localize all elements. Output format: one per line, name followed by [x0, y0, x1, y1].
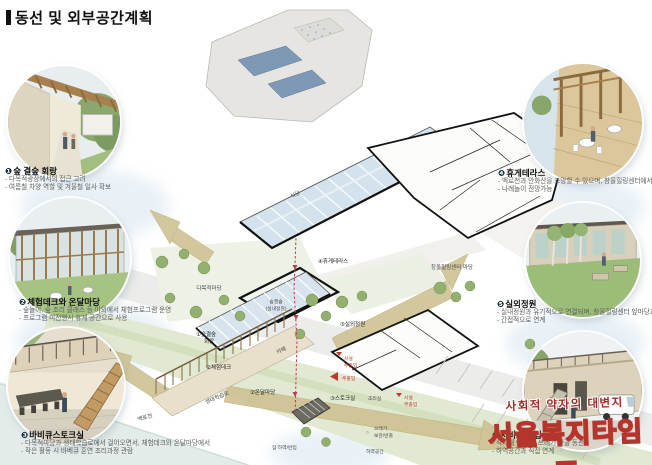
marker-deck: ②체험데크 — [206, 363, 231, 371]
caption-bbq-talk-room: ❸바비큐스토크실 - 다목적마당과 생태학습로에서 걸어오면서, 체험데크와 온… — [21, 430, 210, 456]
label-loading-area: 하역공간 — [366, 448, 384, 455]
caption-title: 숲 결숲 회랑 — [13, 166, 57, 176]
caption-title: 체험데크와 온달마당 — [27, 297, 100, 307]
page-title-text: 동선 및 외부공간계획 — [15, 7, 153, 28]
label-kitchen: 조리실 — [368, 395, 381, 402]
watermark: 사회적 약자의 대변지 서울복지타임즈 — [478, 393, 652, 465]
callout-photo-bbq-talk-room — [8, 328, 124, 444]
caption-rest-terrace: ❹휴게테라스 - 백로천과 안화산을 조망할 수 있으며, 창울힐링센터에서 열… — [498, 168, 652, 194]
label-luggage: 짐 하역/반입 — [272, 444, 297, 451]
caption-number: ❸ — [21, 430, 28, 440]
label-sub-entry-2a: 시설 — [404, 394, 413, 401]
caption-number: ❺ — [497, 299, 504, 309]
caption-line: - 다목적광장에서의 접근 고려 — [5, 176, 111, 184]
caption-title: 휴게테라스 — [506, 168, 545, 178]
label-trash-2: 보관/반출 — [374, 432, 394, 439]
caption-line: - 작은 활동 시 바베큐 훈연 조리과정 관람 — [21, 448, 210, 456]
label-healing-yard: 창울힐링센터 마당 — [431, 263, 473, 271]
main-roof — [206, 10, 372, 122]
title-bar-icon — [6, 10, 11, 25]
caption-line: - 백로천과 안화산을 조망할 수 있으며, 창울힐링센터에서 열리는 — [498, 178, 652, 186]
page-title: 동선 및 외부공간계획 — [6, 7, 153, 28]
label-river: 백로천 — [137, 412, 154, 423]
caption-line: - 프로그램 미진행시 휴게 공간으로 사용 — [19, 315, 171, 323]
label-trash-1: 쓰레기 — [374, 425, 387, 432]
label-multipurpose-yard: 다목적마당 — [196, 284, 221, 292]
caption-line: - 숲놀이, 숲 조리 클래스 등 야외에서 체험프로그램 운영 — [19, 307, 171, 315]
marker-talk: ③스토크실 — [330, 394, 355, 402]
marker-corridor-2: 회랑 — [204, 337, 214, 345]
trash-marker-icon: ○ — [366, 431, 369, 436]
caption-forest-corridor: ❶숲 결숲 회랑 - 다목적광장에서의 접근 고려 - 여름철 차양 역할 및 … — [5, 166, 111, 192]
callout-photo-rest-terrace — [524, 64, 642, 182]
caption-title: 바비큐스토크실 — [29, 430, 84, 440]
label-indoor-garden-1: 숲결숲 — [269, 298, 283, 305]
caption-line: - 다목적마당과 생태학습로에서 걸어오면서, 체험데크와 온달마당에서 — [21, 440, 210, 448]
label-sub-entry-1b: 부출입 — [344, 362, 357, 369]
caption-title: 실외정원 — [505, 299, 536, 309]
caption-line: - 나례놀이 전망가능 — [498, 186, 652, 194]
caption-line: - 간접적으로 연계 — [497, 317, 652, 325]
callout-photo-forest-corridor — [8, 66, 120, 178]
label-main-entry: 주출입 — [342, 375, 355, 382]
label-indoor-garden-2: (실내정원) — [266, 305, 287, 312]
marker-outdoor-garden: ⑤실외정원 — [340, 320, 365, 328]
label-sub-entry-2b: 부출입 — [404, 401, 417, 408]
caption-number: ❹ — [498, 168, 505, 178]
caption-deck-yard: ❷체험데크와 온달마당 - 숲놀이, 숲 조리 클래스 등 야외에서 체험프로그… — [19, 297, 171, 323]
caption-number: ❶ — [5, 166, 12, 176]
watermark-brand: 서울복지타임즈 — [479, 409, 652, 465]
label-sub-entry-1a: 시설 — [344, 355, 353, 362]
caption-outdoor-garden: ❺실외정원 - 실내정원과 유기적으로 연결되며, 창울힐링센터 앞마당과 - … — [497, 299, 652, 325]
marker-corridor-1: ①숲결숲 — [196, 330, 216, 338]
caption-line: - 여름철 차양 역할 및 겨울철 일사 확보 — [5, 184, 111, 192]
caption-number: ❷ — [19, 297, 26, 307]
plan-board: 동선 및 외부공간계획 — [0, 0, 652, 465]
marker-terrace: ④휴게테라스 — [318, 257, 348, 265]
caption-line: - 실내정원과 유기적으로 연결되며, 창울힐링센터 앞마당과 — [497, 309, 652, 317]
marker-ondal: ②온달마당 — [250, 388, 275, 396]
